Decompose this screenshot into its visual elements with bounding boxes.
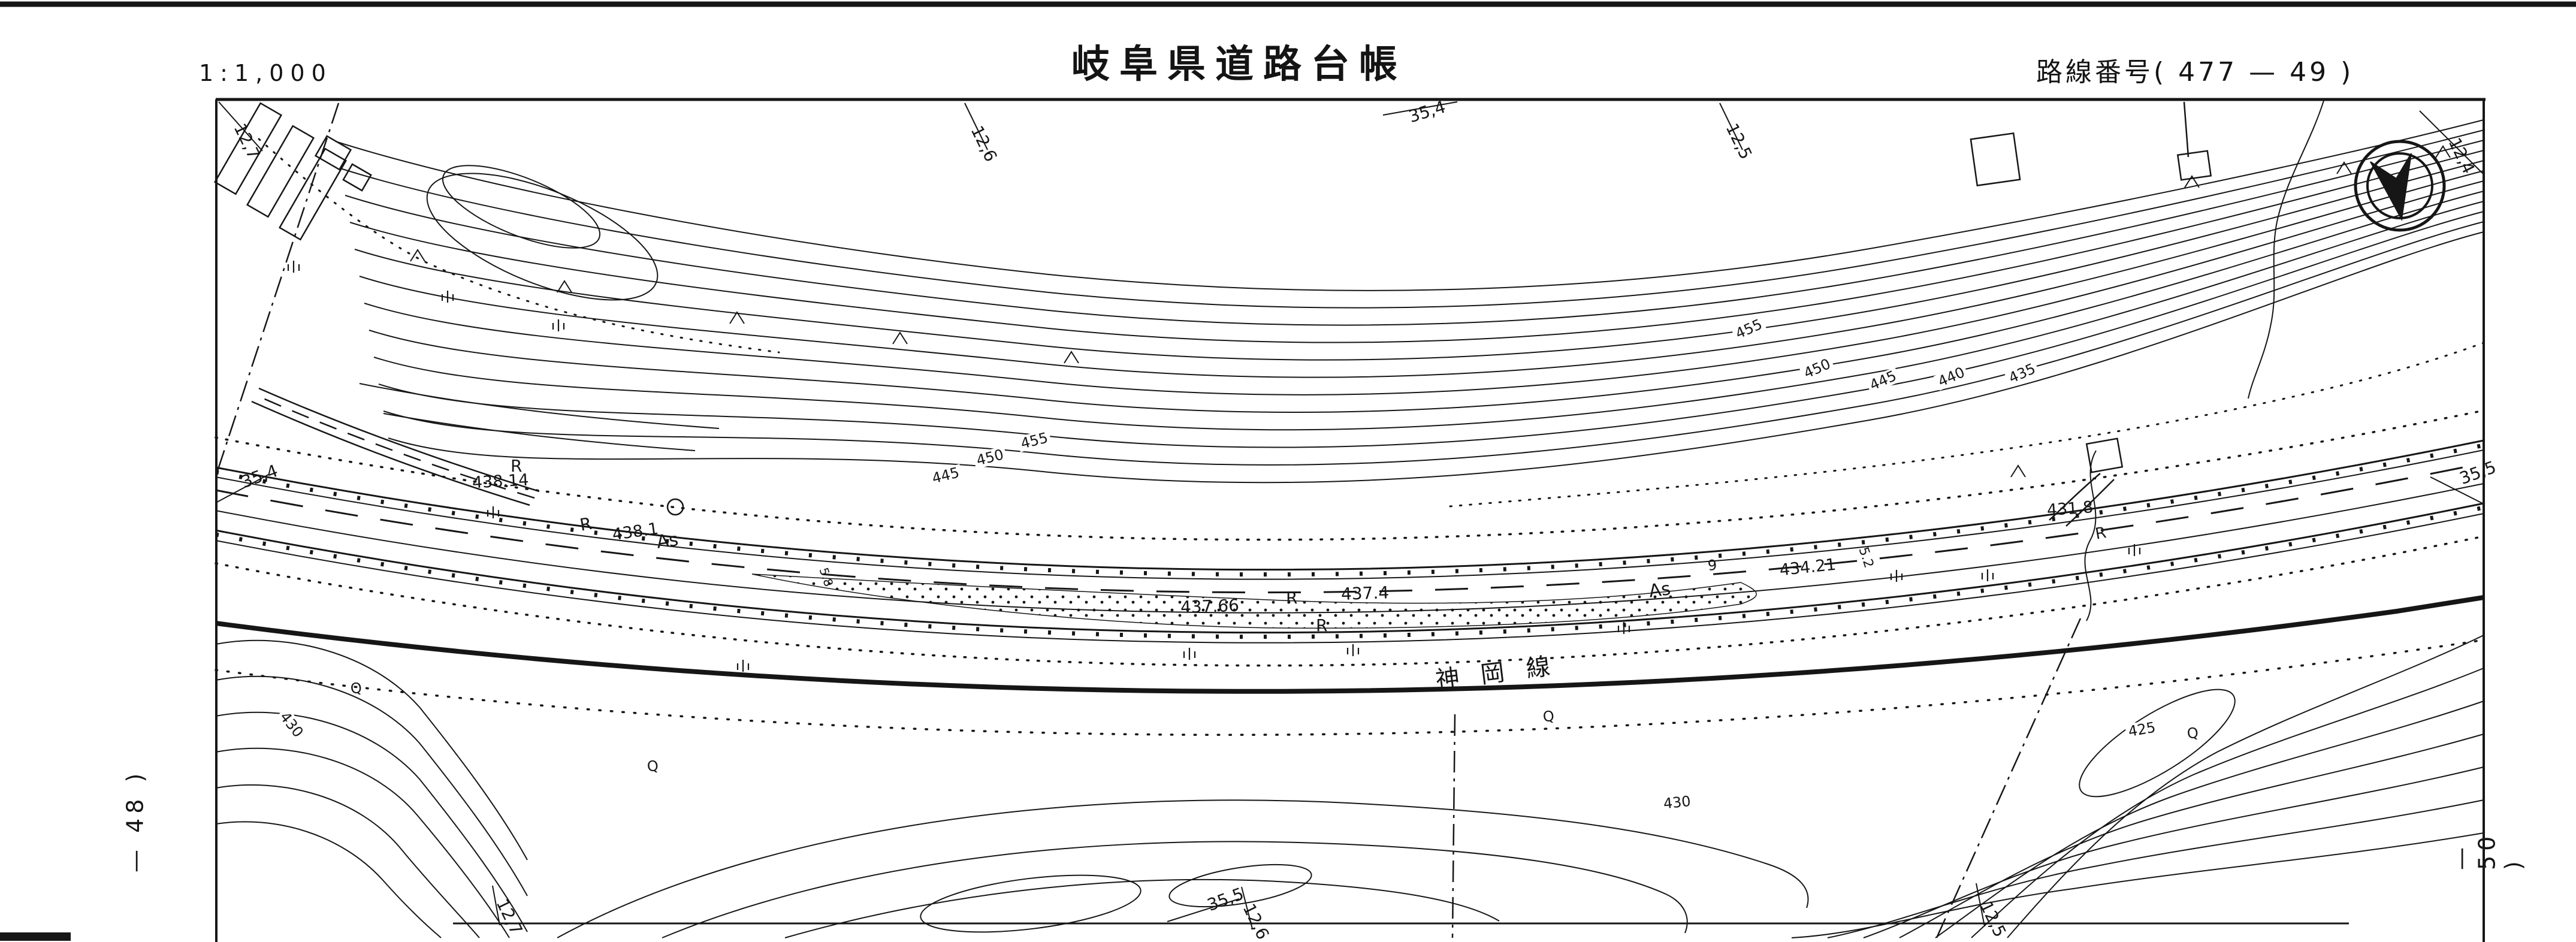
road-register-map-sheet: 1:1,000 岐阜県道路台帳 路線番号( 477 — 49 ) — 48 ) … [0,0,2576,942]
elevation-label: 434.21 [1779,557,1837,579]
grid-coordinate-label: 12,6 [1240,901,1271,942]
contour-elevation-label: 455 [1731,315,1767,343]
grid-coordinate-label: 35,4 [1407,98,1448,125]
pavement-as-label: As [656,531,680,552]
grid-coordinate-label: 12,7 [231,121,262,162]
map-label-layer: 12,712,635,412,512,435,435,512,735,512,6… [0,0,2576,942]
elevation-label: 431.8 [2046,499,2094,518]
contour-elevation-label: 425 [2125,719,2160,740]
radius-point-label: R [1286,590,1297,606]
grid-coordinate-label: 12,5 [1977,899,2008,940]
contour-elevation-label: 445 [928,464,964,487]
kamioka-line-label: 線 [1524,655,1551,682]
width-annotation: 9 [1707,558,1717,573]
contour-elevation-label: 455 [1017,429,1052,452]
tree-symbol: Q [646,758,659,774]
grid-coordinate-label: 35,5 [2457,459,2498,488]
contour-elevation-label: 445 [1865,367,1901,394]
tree-symbol: Q [1542,708,1555,724]
tree-symbol: Q [349,680,363,696]
radius-point-label: R [579,515,593,534]
radius-point-label: R [2094,525,2107,542]
width-annotation: 5.2 [1856,546,1876,570]
tree-symbol: Q [2186,725,2199,741]
elevation-label: 437.4 [1341,584,1390,603]
kamioka-line-label: 神 [1435,666,1461,693]
kamioka-line-label: 岡 [1479,660,1506,687]
grid-coordinate-label: 12,5 [1723,121,1754,162]
elevation-label: 438.14 [472,472,529,491]
contour-elevation-label: 435 [2004,360,2040,387]
contour-elevation-label: 450 [1799,355,1835,382]
contour-elevation-label: 430 [276,707,308,742]
elevation-label: 438.1 [611,521,659,543]
elevation-label: 437.66 [1180,597,1240,616]
grid-coordinate-label: 12,6 [968,123,999,164]
radius-point-label: R [1316,617,1327,634]
grid-coordinate-label: 12,7 [493,896,524,937]
contour-elevation-label: 430 [1660,793,1694,811]
pavement-as-label: As [1648,580,1672,601]
contour-elevation-label: 450 [973,446,1008,469]
grid-coordinate-label: 12,4 [2445,135,2477,176]
grid-coordinate-label: 35,4 [239,463,280,491]
width-annotation: 5.8 [817,566,835,588]
contour-elevation-label: 440 [1934,363,1970,391]
